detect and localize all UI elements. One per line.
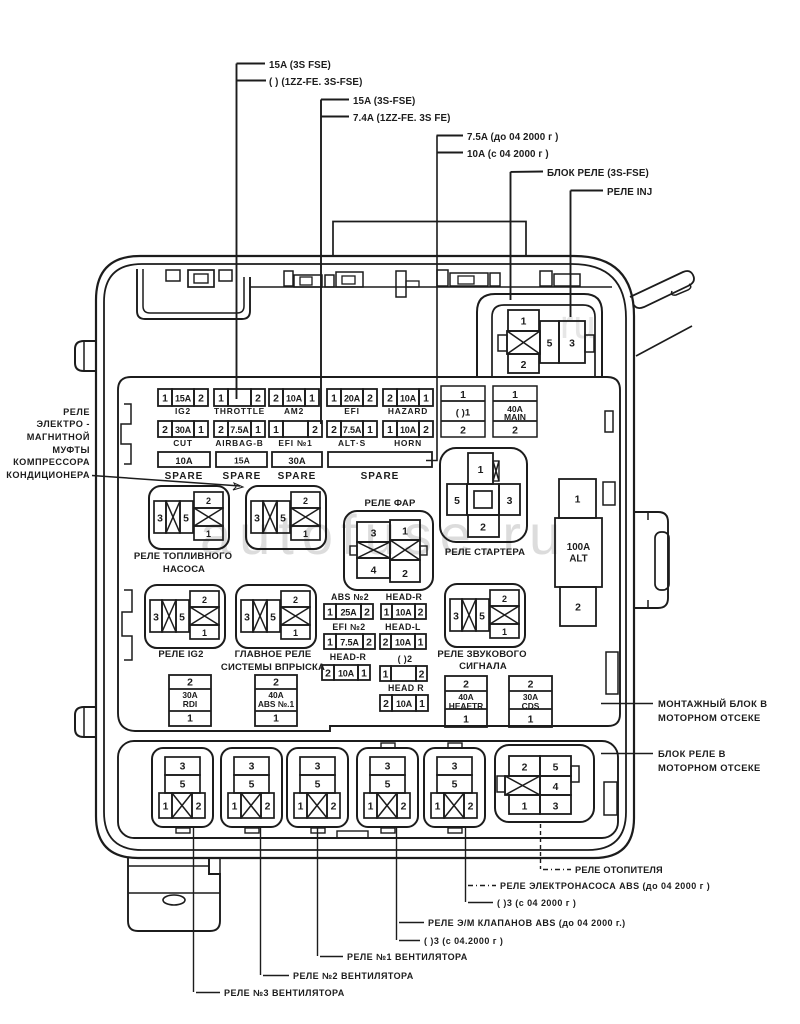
svg-text:2: 2 bbox=[521, 360, 527, 371]
svg-text:EFI №1: EFI №1 bbox=[278, 438, 312, 448]
svg-text:КОМПРЕССОРА: КОМПРЕССОРА bbox=[13, 457, 90, 467]
svg-text:2: 2 bbox=[480, 523, 486, 534]
svg-text:1: 1 bbox=[163, 802, 169, 813]
svg-text:2: 2 bbox=[198, 393, 204, 404]
svg-text:1: 1 bbox=[331, 393, 337, 404]
svg-text:2: 2 bbox=[366, 637, 372, 648]
svg-text:1: 1 bbox=[528, 715, 534, 726]
svg-text:1: 1 bbox=[384, 607, 390, 618]
svg-text:2: 2 bbox=[206, 496, 211, 506]
svg-text:РЕЛЕ: РЕЛЕ bbox=[63, 407, 90, 417]
svg-text:2: 2 bbox=[202, 595, 207, 605]
svg-text:HORN: HORN bbox=[394, 438, 422, 448]
svg-text:3: 3 bbox=[315, 762, 321, 773]
svg-text:2: 2 bbox=[255, 393, 261, 404]
svg-text:1: 1 bbox=[162, 393, 168, 404]
svg-text:5: 5 bbox=[553, 763, 559, 774]
svg-text:7.5A (до 04 2000 г ): 7.5A (до 04 2000 г ) bbox=[467, 132, 558, 143]
svg-text:2: 2 bbox=[575, 603, 581, 614]
svg-text:7.5A: 7.5A bbox=[230, 425, 249, 435]
svg-text:2: 2 bbox=[303, 496, 308, 506]
svg-text:2: 2 bbox=[331, 425, 337, 436]
svg-text:HEAETR: HEAETR bbox=[449, 701, 483, 711]
svg-text:5: 5 bbox=[180, 780, 186, 791]
svg-text:1: 1 bbox=[273, 714, 279, 725]
svg-text:РЕЛЕ Э/М КЛАПАНОВ ABS (до 04 2: РЕЛЕ Э/М КЛАПАНОВ ABS (до 04 2000 г.) bbox=[428, 918, 626, 928]
svg-text:1: 1 bbox=[255, 425, 261, 436]
svg-text:РЕЛЕ ЭЛЕКТРОНАСОСА ABS (до 04: РЕЛЕ ЭЛЕКТРОНАСОСА ABS (до 04 2000 г ) bbox=[500, 881, 710, 891]
svg-text:1: 1 bbox=[368, 802, 374, 813]
svg-text:10A: 10A bbox=[400, 393, 417, 403]
svg-text:1: 1 bbox=[478, 465, 484, 476]
svg-text:2: 2 bbox=[273, 393, 279, 404]
svg-text:2: 2 bbox=[331, 802, 337, 813]
svg-text:EFI №2: EFI №2 bbox=[332, 622, 365, 632]
svg-text:3: 3 bbox=[385, 762, 391, 773]
svg-text:ABS №.1: ABS №.1 bbox=[258, 699, 295, 709]
svg-text:SPARE: SPARE bbox=[223, 471, 262, 482]
svg-text:1: 1 bbox=[463, 715, 469, 726]
svg-text:( )3 (с 04 2000 г ): ( )3 (с 04 2000 г ) bbox=[497, 898, 576, 908]
svg-text:РЕЛЕ ТОПЛИВНОГО: РЕЛЕ ТОПЛИВНОГО bbox=[134, 551, 232, 562]
svg-text:25A: 25A bbox=[340, 607, 357, 617]
svg-text:1: 1 bbox=[327, 607, 333, 618]
svg-text:15A (3S FSE): 15A (3S FSE) bbox=[269, 60, 331, 71]
svg-text:РЕЛЕ №1 ВЕНТИЛЯТОРА: РЕЛЕ №1 ВЕНТИЛЯТОРА bbox=[347, 952, 468, 962]
svg-text:РЕЛЕ ОТОПИТЕЛЯ: РЕЛЕ ОТОПИТЕЛЯ bbox=[575, 865, 663, 875]
svg-text:ru: ru bbox=[560, 303, 596, 347]
svg-text:AIRBAG-B: AIRBAG-B bbox=[215, 438, 263, 448]
svg-text:10A: 10A bbox=[395, 637, 412, 647]
svg-text:3: 3 bbox=[569, 339, 575, 350]
svg-text:РЕЛЕ INJ: РЕЛЕ INJ bbox=[607, 187, 652, 198]
svg-text:РЕЛЕ №3 ВЕНТИЛЯТОРА: РЕЛЕ №3 ВЕНТИЛЯТОРА bbox=[224, 988, 345, 998]
svg-text:HEAD R: HEAD R bbox=[388, 683, 424, 693]
svg-text:2: 2 bbox=[383, 637, 389, 648]
svg-text:МАГНИТНОЙ: МАГНИТНОЙ bbox=[27, 431, 90, 442]
svg-text:БЛОК РЕЛЕ (3S-FSE): БЛОК РЕЛЕ (3S-FSE) bbox=[547, 168, 649, 179]
svg-text:2: 2 bbox=[383, 699, 389, 710]
svg-text:1: 1 bbox=[575, 495, 581, 506]
svg-text:1: 1 bbox=[198, 425, 204, 436]
svg-text:1: 1 bbox=[521, 317, 527, 328]
svg-text:10A: 10A bbox=[395, 607, 412, 617]
svg-text:ЭЛЕКТРО -: ЭЛЕКТРО - bbox=[37, 419, 90, 429]
svg-text:5: 5 bbox=[454, 496, 460, 507]
svg-text:2: 2 bbox=[522, 763, 528, 774]
svg-text:2: 2 bbox=[218, 425, 224, 436]
svg-text:ALT·S: ALT·S bbox=[338, 438, 366, 448]
svg-text:7.5A: 7.5A bbox=[340, 637, 359, 647]
svg-text:1: 1 bbox=[435, 802, 441, 813]
svg-text:МУФТЫ: МУФТЫ bbox=[52, 445, 90, 455]
svg-text:2: 2 bbox=[273, 678, 279, 689]
svg-text:1: 1 bbox=[383, 669, 389, 680]
svg-text:4: 4 bbox=[553, 782, 559, 793]
svg-text:1: 1 bbox=[273, 425, 279, 436]
svg-text:1: 1 bbox=[418, 637, 424, 648]
svg-text:15A: 15A bbox=[234, 456, 250, 466]
svg-text:1: 1 bbox=[423, 393, 429, 404]
svg-text:HAZARD: HAZARD bbox=[388, 406, 428, 416]
svg-text:HEAD-R: HEAD-R bbox=[386, 592, 423, 602]
svg-text:10A: 10A bbox=[396, 699, 413, 709]
svg-text:10A: 10A bbox=[175, 455, 192, 466]
svg-text:1: 1 bbox=[303, 529, 308, 539]
svg-text:1: 1 bbox=[293, 628, 298, 638]
svg-text:2: 2 bbox=[512, 426, 518, 437]
svg-text:1: 1 bbox=[232, 802, 238, 813]
svg-text:1: 1 bbox=[367, 425, 373, 436]
svg-text:3: 3 bbox=[371, 529, 377, 540]
svg-text:3: 3 bbox=[153, 613, 159, 624]
svg-text:СИСТЕМЫ ВПРЫСКА: СИСТЕМЫ ВПРЫСКА bbox=[221, 662, 325, 673]
svg-text:( )3 (с 04.2000 г ): ( )3 (с 04.2000 г ) bbox=[424, 936, 503, 946]
svg-text:2: 2 bbox=[325, 668, 331, 679]
svg-text:20A: 20A bbox=[344, 393, 361, 403]
svg-text:15A (3S-FSE): 15A (3S-FSE) bbox=[353, 96, 415, 107]
svg-text:7.4A (1ZZ-FE. 3S FE): 7.4A (1ZZ-FE. 3S FE) bbox=[353, 113, 450, 124]
svg-text:2: 2 bbox=[463, 680, 469, 691]
svg-text:1: 1 bbox=[298, 802, 304, 813]
svg-text:5: 5 bbox=[452, 780, 458, 791]
svg-text:SPARE: SPARE bbox=[361, 471, 400, 482]
svg-text:1: 1 bbox=[512, 390, 518, 401]
svg-text:10A: 10A bbox=[400, 425, 417, 435]
svg-text:5: 5 bbox=[280, 514, 286, 525]
svg-text:1: 1 bbox=[218, 393, 224, 404]
svg-text:СИГНАЛА: СИГНАЛА bbox=[459, 661, 507, 672]
svg-text:3: 3 bbox=[453, 612, 459, 623]
svg-text:2: 2 bbox=[162, 425, 168, 436]
svg-text:EFI: EFI bbox=[344, 406, 359, 416]
svg-text:3: 3 bbox=[180, 762, 186, 773]
svg-text:CDS: CDS bbox=[522, 701, 540, 711]
svg-text:2: 2 bbox=[402, 569, 408, 580]
svg-text:1: 1 bbox=[202, 628, 207, 638]
svg-text:1: 1 bbox=[387, 425, 393, 436]
svg-text:10A: 10A bbox=[338, 668, 355, 678]
svg-text:ГЛАВНОЕ РЕЛЕ: ГЛАВНОЕ РЕЛЕ bbox=[235, 649, 312, 660]
svg-text:HEAD-R: HEAD-R bbox=[330, 652, 367, 662]
svg-text:2: 2 bbox=[196, 802, 202, 813]
svg-text:3: 3 bbox=[452, 762, 458, 773]
svg-text:100A: 100A bbox=[567, 542, 590, 553]
svg-text:2: 2 bbox=[293, 595, 298, 605]
svg-text:CUT: CUT bbox=[173, 438, 193, 448]
svg-text:5: 5 bbox=[479, 612, 485, 623]
svg-text:5: 5 bbox=[315, 780, 321, 791]
svg-text:2: 2 bbox=[312, 425, 318, 436]
svg-text:2: 2 bbox=[468, 802, 474, 813]
svg-text:2: 2 bbox=[460, 426, 466, 437]
svg-text:1: 1 bbox=[187, 714, 193, 725]
svg-text:ABS №2: ABS №2 bbox=[331, 592, 369, 602]
svg-text:2: 2 bbox=[265, 802, 271, 813]
svg-text:5: 5 bbox=[385, 780, 391, 791]
svg-text:5: 5 bbox=[249, 780, 255, 791]
svg-text:2: 2 bbox=[528, 680, 534, 691]
svg-text:РЕЛЕ ФАР: РЕЛЕ ФАР bbox=[365, 498, 416, 509]
svg-text:2: 2 bbox=[187, 678, 193, 689]
svg-text:1: 1 bbox=[206, 529, 211, 539]
svg-text:( ) (1ZZ-FE. 3S-FSE): ( ) (1ZZ-FE. 3S-FSE) bbox=[269, 77, 362, 88]
svg-text:2: 2 bbox=[418, 607, 424, 618]
svg-text:ALT: ALT bbox=[569, 554, 587, 565]
svg-text:2: 2 bbox=[423, 425, 429, 436]
svg-text:AM2: AM2 bbox=[284, 406, 304, 416]
svg-text:1: 1 bbox=[502, 627, 507, 637]
svg-text:5: 5 bbox=[183, 514, 189, 525]
svg-text:3: 3 bbox=[507, 496, 513, 507]
svg-text:1: 1 bbox=[460, 390, 466, 401]
svg-text:2: 2 bbox=[502, 594, 507, 604]
svg-text:2: 2 bbox=[401, 802, 407, 813]
svg-text:5: 5 bbox=[179, 613, 185, 624]
svg-text:1: 1 bbox=[522, 802, 528, 813]
svg-text:БЛОК РЕЛЕ В: БЛОК РЕЛЕ В bbox=[658, 748, 726, 759]
svg-text:3: 3 bbox=[553, 802, 559, 813]
svg-text:3: 3 bbox=[157, 514, 163, 525]
svg-text:2: 2 bbox=[419, 669, 425, 680]
svg-text:10A (с 04 2000 г ): 10A (с 04 2000 г ) bbox=[467, 149, 549, 160]
svg-text:2: 2 bbox=[387, 393, 393, 404]
svg-text:MAIN: MAIN bbox=[504, 412, 526, 422]
svg-text:( )1: ( )1 bbox=[456, 408, 471, 419]
svg-text:3: 3 bbox=[254, 514, 260, 525]
svg-text:МОНТАЖНЫЙ БЛОК В: МОНТАЖНЫЙ БЛОК В bbox=[658, 698, 767, 709]
svg-text:РЕЛЕ №2 ВЕНТИЛЯТОРА: РЕЛЕ №2 ВЕНТИЛЯТОРА bbox=[293, 971, 414, 981]
svg-text:КОНДИЦИОНЕРА: КОНДИЦИОНЕРА bbox=[6, 470, 90, 480]
svg-text:НАСОСА: НАСОСА bbox=[163, 564, 205, 575]
svg-text:МОТОРНОМ ОТСЕКЕ: МОТОРНОМ ОТСЕКЕ bbox=[658, 712, 761, 723]
svg-text:1: 1 bbox=[419, 699, 425, 710]
svg-text:RDI: RDI bbox=[183, 699, 197, 709]
svg-text:3: 3 bbox=[249, 762, 255, 773]
svg-text:МОТОРНОМ ОТСЕКЕ: МОТОРНОМ ОТСЕКЕ bbox=[658, 762, 761, 773]
svg-text:2: 2 bbox=[367, 393, 373, 404]
svg-text:IG2: IG2 bbox=[175, 406, 191, 416]
svg-text:1: 1 bbox=[309, 393, 315, 404]
svg-text:1: 1 bbox=[327, 637, 333, 648]
svg-text:РЕЛЕ IG2: РЕЛЕ IG2 bbox=[158, 649, 203, 660]
svg-text:15A: 15A bbox=[175, 393, 192, 403]
svg-text:30A: 30A bbox=[175, 425, 192, 435]
svg-text:THROTTLE: THROTTLE bbox=[214, 406, 265, 416]
svg-text:3: 3 bbox=[244, 613, 250, 624]
svg-text:РЕЛЕ ЗВУКОВОГО: РЕЛЕ ЗВУКОВОГО bbox=[437, 649, 526, 660]
svg-text:10A: 10A bbox=[286, 393, 303, 403]
svg-text:РЕЛЕ СТАРТЕРА: РЕЛЕ СТАРТЕРА bbox=[445, 547, 525, 558]
svg-text:1: 1 bbox=[402, 527, 408, 538]
svg-text:7.5A: 7.5A bbox=[343, 425, 362, 435]
svg-text:SPARE: SPARE bbox=[278, 471, 317, 482]
svg-text:30A: 30A bbox=[288, 455, 305, 466]
svg-text:SPARE: SPARE bbox=[165, 471, 204, 482]
svg-text:5: 5 bbox=[547, 339, 553, 350]
svg-text:2: 2 bbox=[364, 607, 370, 618]
svg-text:1: 1 bbox=[361, 668, 367, 679]
svg-text:HEAD-L: HEAD-L bbox=[385, 622, 421, 632]
svg-text:4: 4 bbox=[371, 566, 377, 577]
svg-text:5: 5 bbox=[270, 613, 276, 624]
svg-text:( )2: ( )2 bbox=[398, 654, 413, 664]
